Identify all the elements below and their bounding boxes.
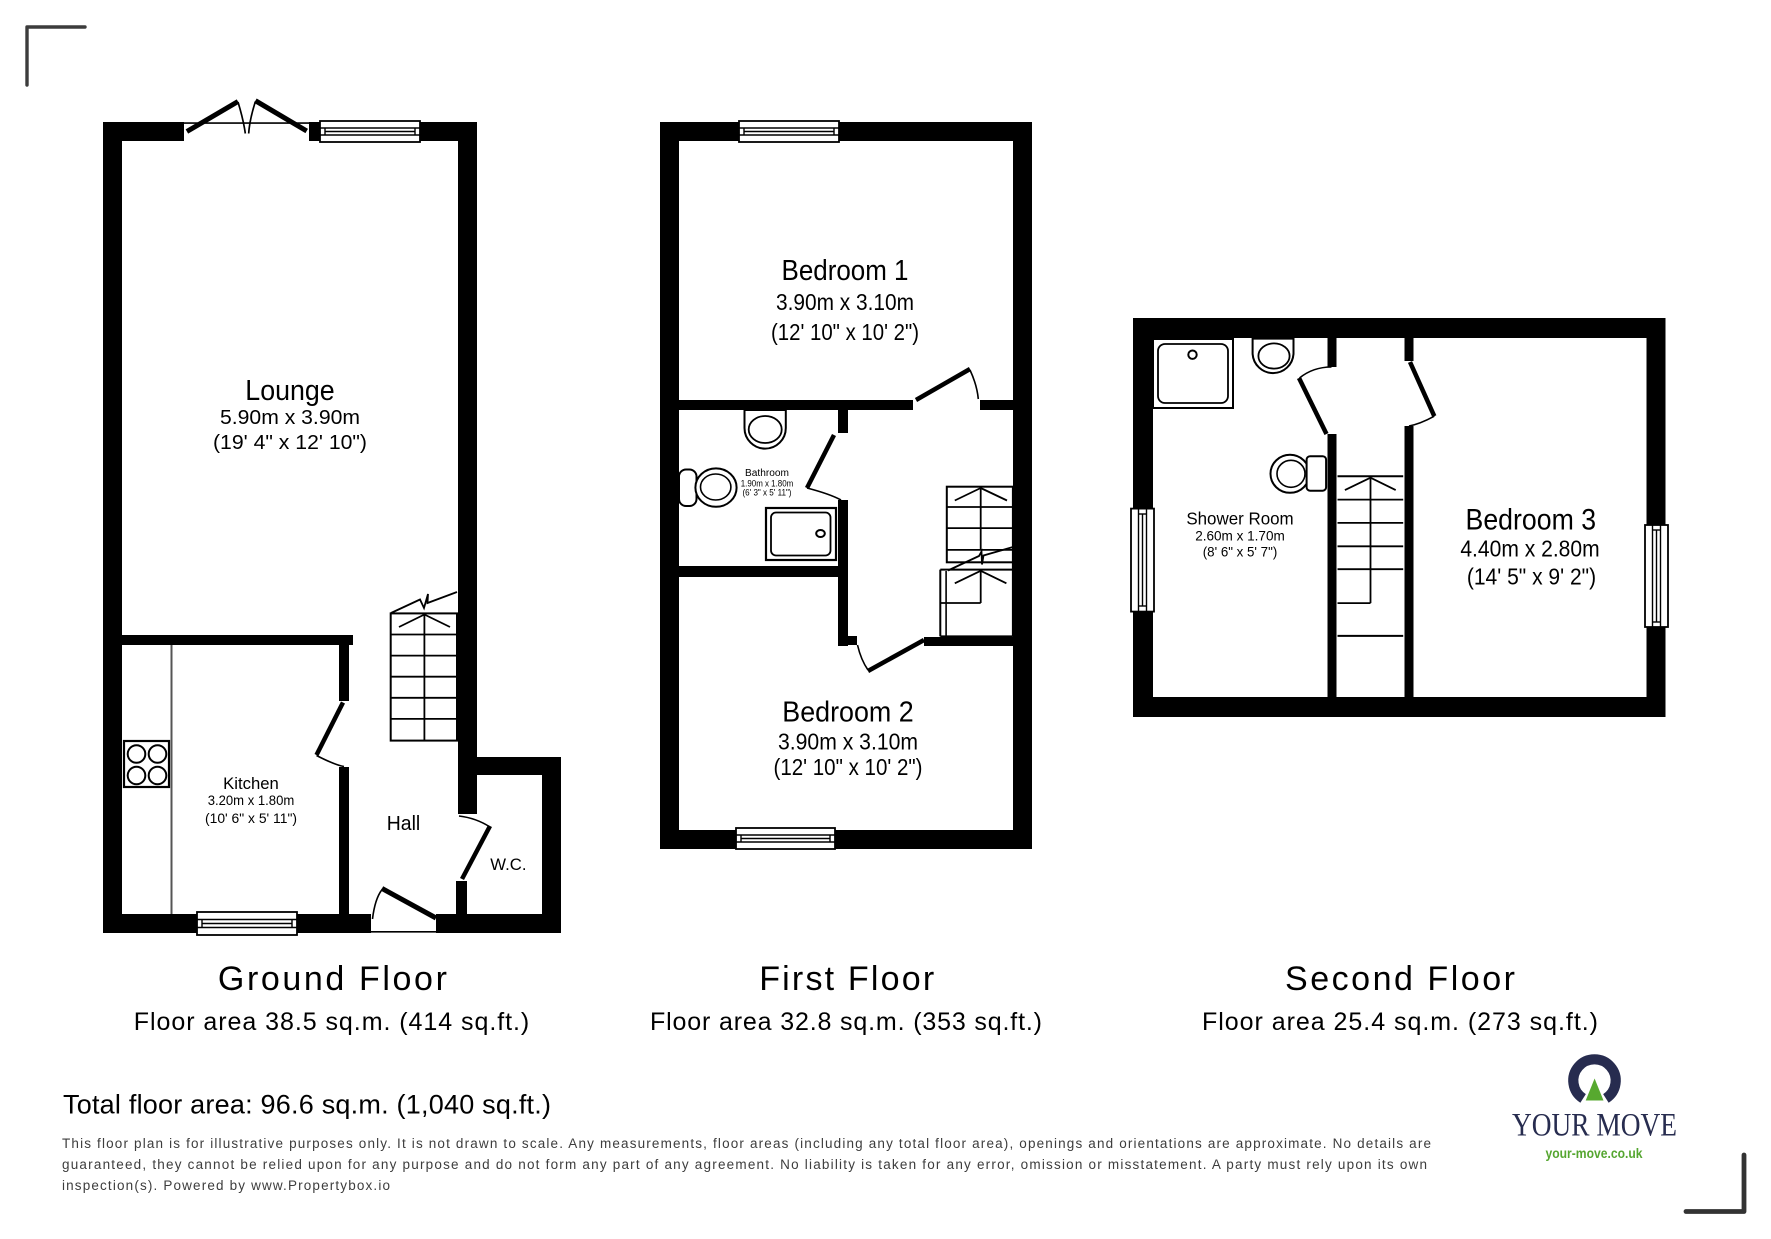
svg-text:your-move.co.uk: your-move.co.uk — [1546, 1146, 1643, 1161]
svg-text:(10' 6" x 5' 11"): (10' 6" x 5' 11") — [205, 810, 297, 826]
svg-text:Floor area 25.4 sq.m. (273 sq.: Floor area 25.4 sq.m. (273 sq.ft.) — [1202, 1008, 1598, 1036]
svg-text:Hall: Hall — [387, 812, 421, 835]
svg-text:(12' 10" x 10' 2"): (12' 10" x 10' 2") — [774, 754, 923, 780]
svg-text:Lounge: Lounge — [245, 375, 334, 407]
svg-text:Second Floor: Second Floor — [1285, 960, 1515, 998]
svg-text:(6' 3" x 5' 11"): (6' 3" x 5' 11") — [743, 488, 792, 499]
svg-text:First Floor: First Floor — [759, 960, 934, 998]
svg-text:Shower Room: Shower Room — [1186, 509, 1293, 529]
svg-text:(19' 4" x 12' 10"): (19' 4" x 12' 10") — [213, 432, 367, 454]
svg-text:(14' 5" x 9' 2"): (14' 5" x 9' 2") — [1467, 564, 1596, 590]
svg-text:Bedroom 3: Bedroom 3 — [1466, 503, 1597, 536]
svg-text:Total floor area: 96.6 sq.m. (: Total floor area: 96.6 sq.m. (1,040 sq.f… — [63, 1090, 551, 1120]
svg-text:(12' 10" x 10' 2"): (12' 10" x 10' 2") — [771, 319, 919, 345]
svg-text:Bedroom 2: Bedroom 2 — [782, 696, 913, 728]
svg-text:This floor plan is for illustr: This floor plan is for illustrative purp… — [62, 1136, 1431, 1151]
svg-text:Floor area 32.8 sq.m. (353 sq.: Floor area 32.8 sq.m. (353 sq.ft.) — [650, 1008, 1042, 1036]
svg-text:Kitchen: Kitchen — [223, 775, 279, 793]
svg-text:Ground Floor: Ground Floor — [218, 960, 447, 998]
svg-text:guaranteed, they cannot be rel: guaranteed, they cannot be relied upon f… — [62, 1157, 1427, 1172]
svg-text:5.90m x 3.90m: 5.90m x 3.90m — [220, 407, 360, 429]
svg-text:2.60m x 1.70m: 2.60m x 1.70m — [1195, 528, 1285, 544]
svg-text:Floor area 38.5 sq.m. (414 sq.: Floor area 38.5 sq.m. (414 sq.ft.) — [134, 1008, 530, 1036]
svg-text:inspection(s). Powered by www.: inspection(s). Powered by www.Propertybo… — [62, 1178, 390, 1193]
svg-text:3.90m x 3.10m: 3.90m x 3.10m — [778, 728, 918, 754]
svg-text:(8' 6" x 5' 7"): (8' 6" x 5' 7") — [1203, 544, 1278, 560]
svg-text:3.90m x 3.10m: 3.90m x 3.10m — [776, 289, 914, 315]
svg-text:W.C.: W.C. — [490, 856, 526, 874]
svg-text:4.40m x 2.80m: 4.40m x 2.80m — [1460, 536, 1599, 562]
svg-text:YOUR MOVE: YOUR MOVE — [1512, 1108, 1677, 1144]
svg-text:Bathroom: Bathroom — [745, 468, 789, 479]
svg-text:Bedroom 1: Bedroom 1 — [782, 255, 909, 287]
svg-text:3.20m x 1.80m: 3.20m x 1.80m — [208, 792, 295, 808]
